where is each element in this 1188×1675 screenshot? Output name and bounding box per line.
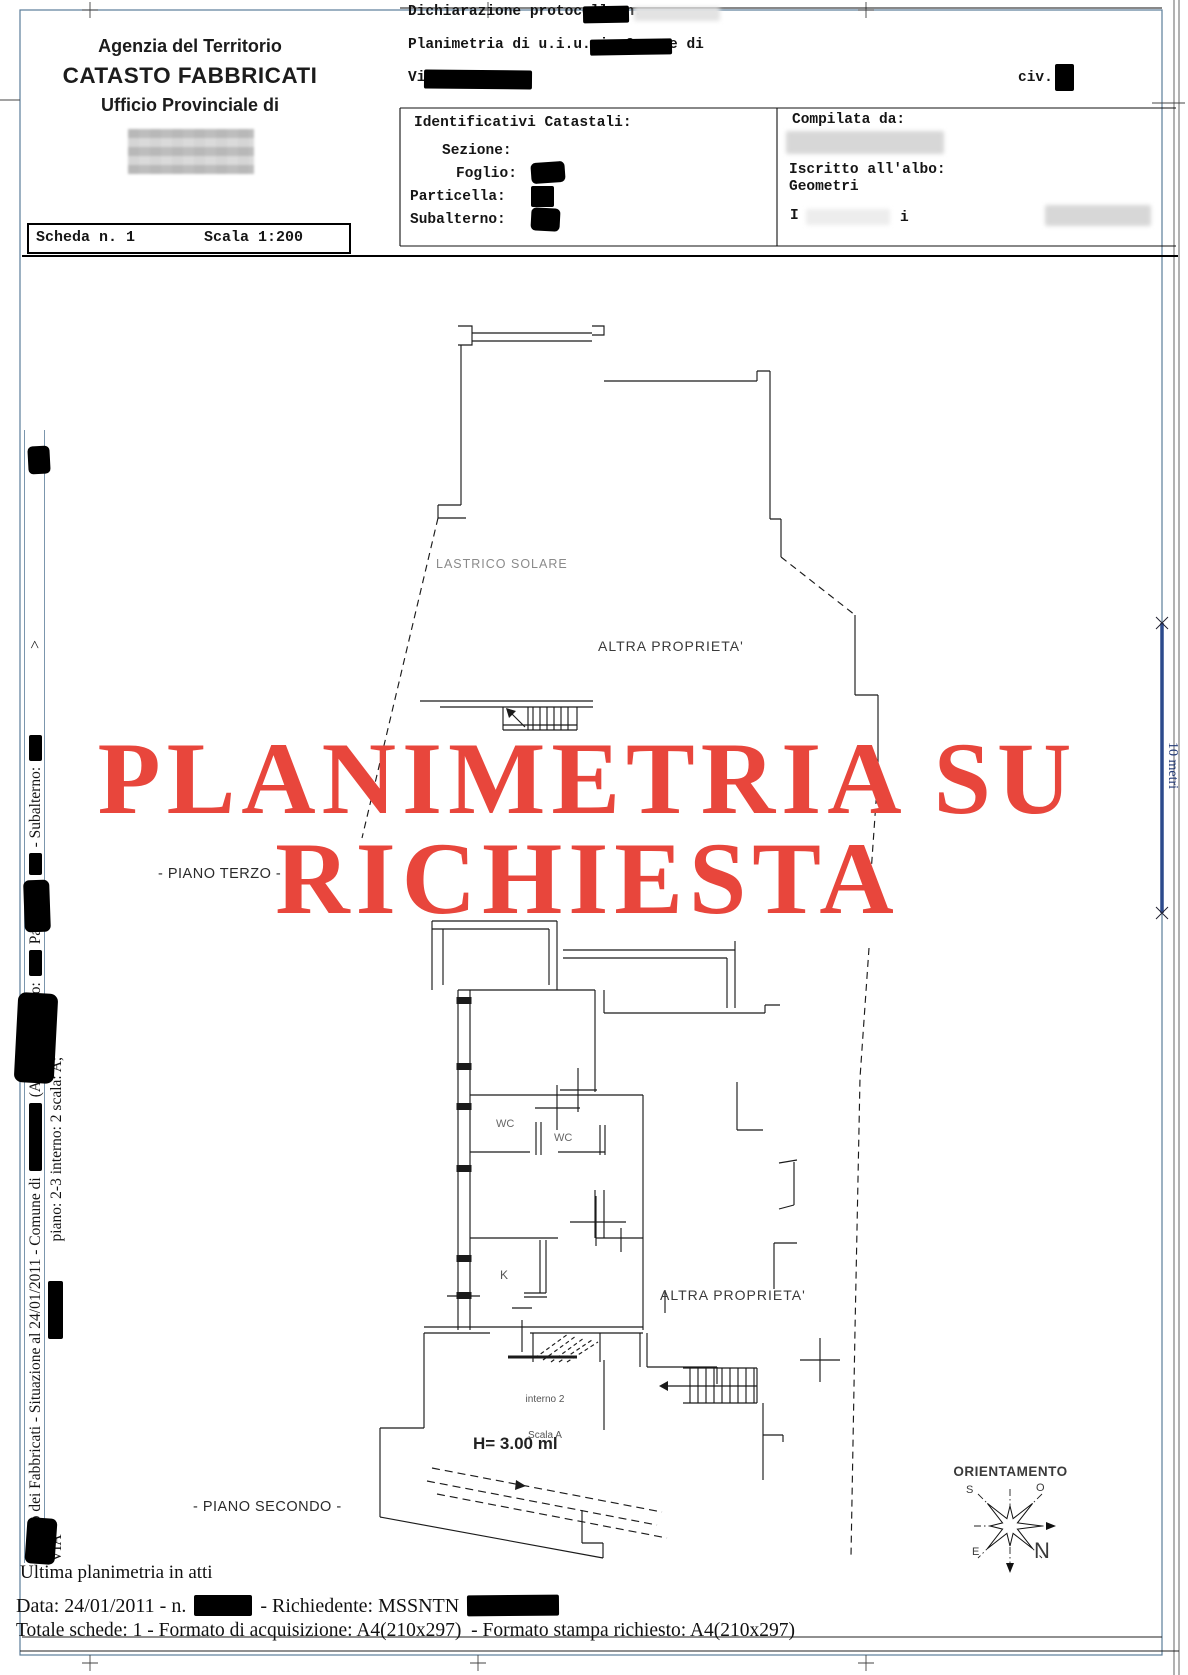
foglio-redaction bbox=[530, 161, 565, 184]
interno-line1: interno 2 bbox=[505, 1394, 585, 1406]
margin-text-1: Catasto dei Fabbricati - Situazione al 2… bbox=[27, 1177, 44, 1562]
footer-number-redaction bbox=[194, 1595, 252, 1616]
wall-fill-ticks bbox=[457, 997, 472, 1299]
footer-line3: Totale schede: 1 - Formato di acquisizio… bbox=[16, 1620, 795, 1642]
office-name-pixelated-redaction bbox=[128, 129, 254, 174]
agency-line1: Agenzia del Territorio bbox=[55, 36, 325, 57]
margin-redaction-blob-4 bbox=[27, 445, 50, 474]
name-fragment-right: i bbox=[900, 210, 909, 226]
civ-number-redaction bbox=[1055, 64, 1074, 91]
identificativi-title: Identificativi Catastali: bbox=[414, 115, 632, 131]
name-blur bbox=[806, 209, 890, 225]
margin-piano-text: piano: 2-3 interno: 2 scala: A; bbox=[48, 1057, 65, 1242]
margin-strip-line2: VIApiano: 2-3 interno: 2 scala: A; bbox=[48, 1057, 66, 1562]
wc-label-2: WC bbox=[554, 1132, 572, 1144]
footer-name-redaction bbox=[467, 1595, 559, 1617]
street-redaction bbox=[424, 70, 532, 90]
wc-label-1: WC bbox=[496, 1118, 514, 1130]
margin-text-5: > bbox=[27, 640, 44, 649]
compilata-label: Compilata da: bbox=[792, 112, 905, 128]
stairs-direction-arrow bbox=[659, 1381, 668, 1391]
altra-proprieta-bottom-label: ALTRA PROPRIETA' bbox=[660, 1287, 806, 1303]
foglio-label: Foglio: bbox=[456, 166, 517, 182]
margin-redaction-blob-2 bbox=[23, 880, 51, 933]
albo-line1: Iscritto all'albo: bbox=[789, 162, 946, 178]
orientation-title: ORIENTAMENTO bbox=[938, 1464, 1083, 1479]
kitchen-label: K bbox=[500, 1268, 508, 1282]
watermark-line1: PLANIMETRIA SU bbox=[55, 728, 1120, 831]
height-label: H= 3.00 ml bbox=[473, 1434, 558, 1454]
margin-redaction-blob-3 bbox=[24, 1517, 57, 1565]
footer-line2: Data: 24/01/2011 - n.- Richiedente: MSSN… bbox=[16, 1595, 567, 1618]
scala-value: Scala 1:200 bbox=[204, 229, 303, 246]
particella-label: Particella: bbox=[410, 189, 506, 205]
piano-secondo-label: - PIANO SECONDO - bbox=[193, 1499, 342, 1515]
footer-date-text: Data: 24/01/2011 - n. bbox=[16, 1595, 186, 1617]
watermark-line2: RICHIESTA bbox=[55, 828, 1120, 931]
subalterno-redaction bbox=[530, 207, 560, 231]
protocol-number-blur bbox=[634, 7, 720, 21]
name-fragment-left: I bbox=[790, 208, 799, 224]
window-cross-marks bbox=[535, 1068, 597, 1130]
footer-line1: Ultima planimetria in atti bbox=[20, 1562, 213, 1584]
terrace-dashed-lines bbox=[427, 1468, 667, 1538]
margin-text-4: - Subalterno: bbox=[27, 767, 44, 848]
margin-redaction-subalterno bbox=[29, 735, 42, 761]
piano-secondo-plan bbox=[380, 921, 840, 1558]
signature-blur bbox=[1045, 205, 1151, 226]
margin-strip-line1: Catasto dei Fabbricati - Situazione al 2… bbox=[27, 640, 45, 1562]
protocol-number-redaction bbox=[583, 6, 629, 24]
agency-line3: Ufficio Provinciale di bbox=[55, 95, 325, 116]
agency-line2: CATASTO FABBRICATI bbox=[55, 63, 325, 89]
page-edge-lines bbox=[1174, 0, 1179, 1675]
altra-proprieta-top-label: ALTRA PROPRIETA' bbox=[598, 638, 744, 654]
scheda-number: Scheda n. 1 bbox=[36, 229, 135, 246]
footer-richiedente-text: - Richiedente: MSSNTN bbox=[260, 1595, 459, 1617]
compass-label-s: S bbox=[966, 1484, 973, 1496]
particella-redaction bbox=[531, 186, 554, 207]
subalterno-label: Subalterno: bbox=[410, 212, 506, 228]
margin-redaction-comune bbox=[29, 1103, 42, 1171]
compiler-name-blur bbox=[786, 131, 944, 154]
comune-redaction bbox=[590, 38, 672, 55]
property-boundary-dashed bbox=[781, 557, 878, 1556]
compass-label-e: E bbox=[972, 1546, 979, 1558]
margin-redaction-via bbox=[48, 1281, 63, 1339]
albo-line2: Geometri bbox=[789, 179, 859, 195]
civ-label: civ. bbox=[1018, 70, 1053, 86]
compass-label-o: O bbox=[1036, 1482, 1045, 1494]
margin-redaction-particella bbox=[29, 853, 42, 875]
sezione-label: Sezione: bbox=[442, 143, 512, 159]
compass-label-n: N bbox=[1034, 1538, 1050, 1564]
margin-big-redaction bbox=[14, 992, 59, 1084]
scale-bar-label: 10 metri bbox=[1164, 742, 1180, 789]
lastrico-solare-label: LASTRICO SOLARE bbox=[436, 557, 568, 571]
agency-header: Agenzia del Territorio CATASTO FABBRICAT… bbox=[55, 36, 325, 116]
cadastral-floorplan-document: Agenzia del Territorio CATASTO FABBRICAT… bbox=[0, 0, 1188, 1675]
margin-redaction-foglio bbox=[29, 950, 42, 976]
piano-terzo-plan bbox=[362, 326, 878, 1556]
external-stairs bbox=[665, 1338, 840, 1480]
